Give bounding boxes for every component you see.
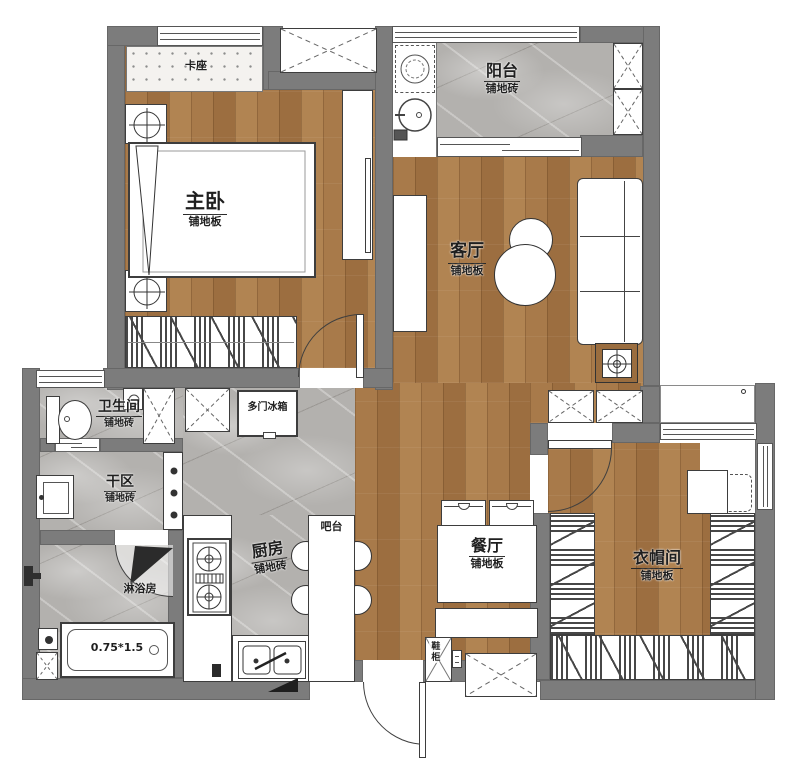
room-floor-type: 铺地砖 (80, 493, 160, 505)
room-name: 卫生间 (96, 399, 142, 417)
wall-bedroom-north-a (107, 26, 164, 46)
ac-platform-north (280, 28, 377, 73)
wall-west-lower (22, 368, 40, 700)
vanity-basin (43, 482, 69, 514)
sofa-cushion-line (580, 236, 640, 237)
room-floor-type: 铺地砖 (79, 418, 159, 430)
window-cloakroom-north (660, 423, 757, 440)
fridge (237, 390, 298, 437)
fridge-label-text: 多门冰箱 (248, 402, 288, 413)
window-line (663, 429, 754, 430)
washing-machine (395, 45, 435, 93)
wall-east-upper (643, 26, 660, 386)
room-label-dining-room: 餐厅 铺地板 (437, 537, 537, 571)
sliding-door-line (440, 144, 510, 145)
cloakroom-wardrobe-west (550, 513, 595, 635)
window-line (160, 39, 260, 40)
shoe-cabinet-label: 鞋柜 (429, 641, 439, 663)
room-name: 阳台 (484, 62, 520, 82)
window-line (39, 376, 102, 377)
shower-room-label-text: 淋浴房 (124, 582, 157, 595)
bedroom-door-leaf (356, 314, 364, 378)
fridge-door-notch (263, 432, 276, 439)
sliding-door-line (58, 443, 82, 444)
wall-cloakroom-south (540, 680, 775, 700)
wall-bedroom-south (103, 368, 300, 388)
window-line (763, 446, 764, 507)
bedroom-tv (365, 158, 371, 253)
chair-notch (458, 503, 470, 510)
entry-level-marker (266, 676, 300, 694)
fridge-label: 多门冰箱 (237, 402, 298, 414)
wall-east-lower (755, 383, 775, 700)
wall-bedroom-east (375, 26, 393, 390)
dining-bench (435, 608, 538, 638)
wall-bedroom-west (107, 26, 125, 390)
window-line (39, 382, 102, 383)
wall-hall-stub-west (530, 423, 548, 455)
window-bathroom-west (36, 370, 105, 388)
room-name: 客厅 (448, 242, 486, 264)
kitchen-sink (238, 641, 306, 679)
sliding-door-line (71, 447, 97, 448)
handle-line (455, 656, 459, 657)
entry-door-leaf (419, 682, 426, 758)
room-floor-type: 铺地板 (607, 570, 707, 583)
tub-side-shaft (36, 652, 58, 680)
bathroom-door-threshold (55, 438, 100, 452)
window-line (395, 37, 577, 38)
bar-label: 吧台 (308, 521, 355, 534)
balcony-sliding-door (437, 137, 582, 157)
entry-door-arc (363, 682, 426, 745)
bathtub-size-label: 0.75*1.5 (72, 642, 162, 655)
floor-plan: 卡座 主卧 铺地板 阳台 铺地砖 (0, 0, 800, 776)
cloakroom-door-leaf (548, 440, 612, 449)
vanity-faucet (39, 495, 44, 500)
balcony-shaft-lower (613, 89, 643, 135)
booth-label: 卡座 (146, 60, 246, 73)
entry-shaft (465, 653, 537, 697)
room-label-master-bedroom: 主卧 铺地板 (150, 190, 260, 229)
bathroom-shaft-right (185, 388, 230, 432)
room-label-living-room: 客厅 铺地板 (417, 242, 517, 277)
window-balcony-north (392, 26, 580, 43)
booth-label-text: 卡座 (185, 59, 207, 72)
wall-balcony-south (580, 135, 643, 157)
chair-notch (506, 503, 518, 510)
window-bedroom-north (157, 26, 263, 46)
dry-area-partition (163, 452, 183, 530)
sofa-cushion-line (580, 291, 640, 292)
shower-valve-stub (31, 573, 41, 579)
tub-side-box (38, 628, 58, 650)
hall-shaft-right (596, 390, 643, 423)
toilet-flush-dot (64, 416, 70, 422)
room-floor-type: 铺地砖 (452, 83, 552, 96)
sofa-back-line (624, 181, 625, 342)
room-name: 餐厅 (469, 537, 505, 557)
dining-chair (441, 500, 486, 526)
balcony-shaft-upper (613, 43, 643, 89)
wall-bedroom-south-stub (363, 368, 393, 388)
wall-hall-stub-east (612, 423, 660, 443)
room-floor-type: 铺地板 (417, 265, 517, 278)
cloakroom-desk (687, 470, 728, 514)
bay-marker (741, 389, 746, 394)
shoe-cabinet-label-text: 鞋柜 (429, 641, 439, 663)
shoe-cabinet-handle (452, 650, 462, 668)
window-line (663, 434, 754, 435)
hall-shaft-left (548, 390, 594, 423)
entry-door-opening (363, 660, 423, 682)
room-label-cloakroom: 衣帽间 铺地板 (607, 549, 707, 583)
wall-hall-corner (640, 386, 660, 423)
room-label-bathroom: 卫生间 铺地砖 (79, 399, 159, 430)
sofa (577, 178, 643, 345)
shower-room-label: 淋浴房 (95, 583, 185, 596)
cloakroom-wardrobe-east (710, 513, 755, 635)
wall-shower-north (40, 530, 115, 545)
room-name: 主卧 (183, 190, 227, 215)
bedroom-wardrobe (125, 316, 297, 368)
wardrobe-rod (128, 342, 294, 343)
sliding-door-line (502, 150, 579, 151)
room-name: 衣帽间 (631, 549, 683, 569)
room-floor-type: 铺地板 (150, 216, 260, 229)
room-floor-type: 铺地板 (437, 558, 537, 571)
cloakroom-wardrobe-south (550, 635, 755, 680)
window-cloakroom-east (757, 443, 773, 510)
room-label-balcony: 阳台 铺地砖 (452, 62, 552, 96)
room-name: 干区 (104, 474, 136, 492)
bathtub-size-text: 0.75*1.5 (91, 641, 143, 654)
window-line (395, 32, 577, 33)
nightstand-top (125, 104, 167, 144)
bar-label-text: 吧台 (321, 520, 343, 533)
wall-under-ac-box (268, 71, 378, 90)
window-line (160, 33, 260, 34)
side-table (595, 343, 638, 383)
dining-chair (489, 500, 534, 526)
room-label-dry-area: 干区 铺地砖 (80, 474, 160, 505)
handle-line (455, 662, 459, 663)
kitchen-socket (212, 664, 221, 677)
vanity-sink (36, 475, 74, 519)
balcony-sink (393, 94, 439, 140)
window-line (767, 446, 768, 507)
